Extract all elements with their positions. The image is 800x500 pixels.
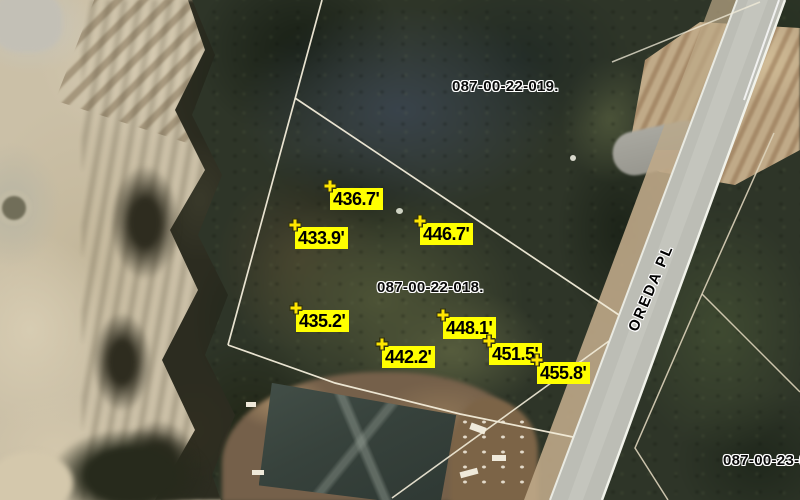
map-canvas[interactable]: 087-00-22-019. 087-00-22-018. 087-00-23-… (0, 0, 800, 500)
survey-point-icon (481, 333, 497, 349)
elevation-label: 435.2' (296, 310, 349, 332)
terrain-patch (110, 165, 180, 280)
parcel-id-label: 087-00-23-00 (723, 452, 800, 469)
elevation-label: 455.8' (537, 362, 590, 384)
terrain-debris (252, 470, 264, 475)
elevation-value: 435.2' (299, 311, 345, 331)
elevation-label: 446.7' (420, 223, 473, 245)
terrain-patch (2, 196, 26, 220)
survey-point-icon (374, 336, 390, 352)
elevation-label: 442.2' (382, 346, 435, 368)
parcel-id-label: 087-00-22-018. (377, 279, 484, 296)
parcel-id-label: 087-00-22-019. (452, 78, 559, 95)
terrain-patch (396, 208, 403, 214)
terrain-debris (455, 412, 530, 492)
survey-point-icon (529, 352, 545, 368)
elevation-value: 455.8' (540, 363, 586, 383)
elevation-label: 433.9' (295, 227, 348, 249)
survey-point-icon (288, 300, 304, 316)
terrain-patch (0, 0, 62, 52)
survey-point-icon (435, 307, 451, 323)
survey-point-icon (287, 217, 303, 233)
terrain-patch (50, 428, 210, 500)
survey-point-icon (412, 213, 428, 229)
elevation-value: 436.7' (333, 189, 379, 209)
survey-point-icon (322, 178, 338, 194)
elevation-value: 446.7' (423, 224, 469, 244)
terrain-patch (92, 312, 152, 412)
elevation-value: 442.2' (385, 347, 431, 367)
elevation-label: 436.7' (330, 188, 383, 210)
elevation-value: 433.9' (298, 228, 344, 248)
terrain-debris (492, 455, 506, 461)
terrain-patch (570, 155, 576, 161)
terrain-debris (246, 402, 256, 407)
